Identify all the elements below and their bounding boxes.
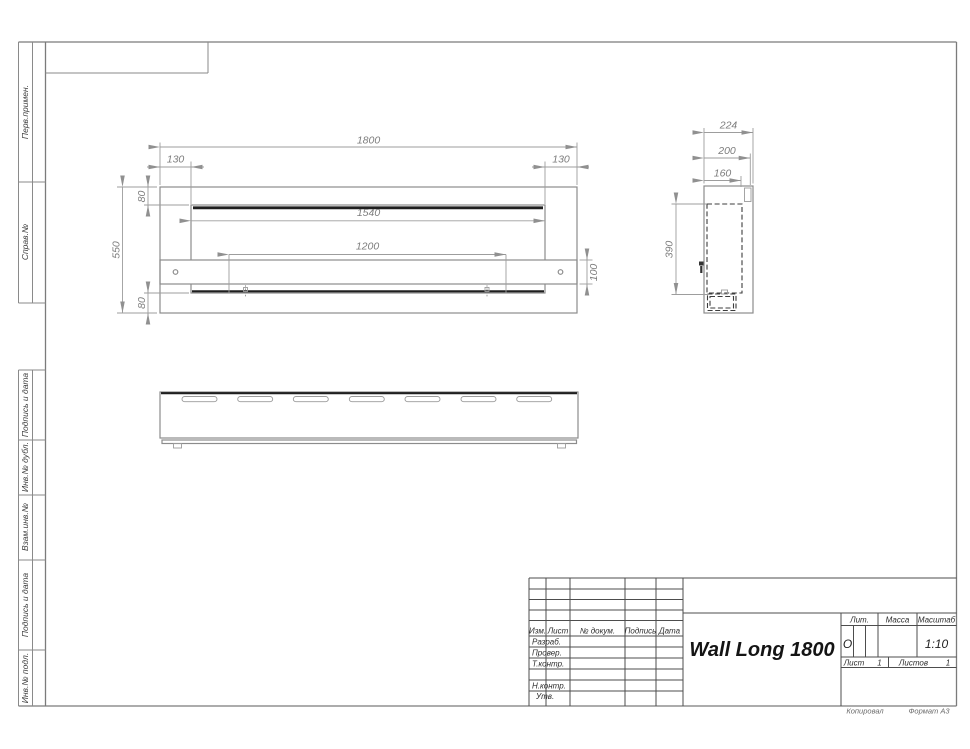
dim-side-depth-body: 200 <box>717 145 736 157</box>
side-latch <box>699 262 704 266</box>
margin-label-sprav-no: Справ.№ <box>20 224 30 260</box>
plan-view <box>160 392 578 448</box>
dim-side-depth-overall: 224 <box>719 120 738 132</box>
tb-col-doc: № докум. <box>580 627 615 636</box>
tb-row-razrab: Разраб. <box>532 638 561 647</box>
tb-row-utv: Утв. <box>535 692 554 701</box>
plan-mount-rail <box>162 440 577 444</box>
tb-col-data: Дата <box>658 627 681 636</box>
tb-liter-value: О <box>843 637 852 651</box>
dim-side-depth-inner: 160 <box>714 168 732 180</box>
dim-front-height: 550 <box>111 241 123 259</box>
tb-sheets-value: 1 <box>946 659 950 668</box>
tb-drawing-name: Wall Long 1800 <box>689 639 834 661</box>
dim-side-inner-height: 390 <box>664 241 676 259</box>
tb-row-nkontr: Н.контр. <box>532 682 566 691</box>
margin-label-podpis-data-1: Подпись и дата <box>20 373 30 438</box>
dim-front-inner-width: 1200 <box>356 241 380 253</box>
dim-front-width: 1800 <box>357 135 381 147</box>
tb-row-prover: Провер. <box>532 649 562 658</box>
front-view: 1540 1200 1800 130 130 550 <box>111 135 601 321</box>
engineering-drawing: Перв.примен. Справ.№ Подпись и дата Инв.… <box>0 0 970 749</box>
drawing-frame <box>19 42 957 706</box>
footer-format: Формат А3 <box>908 707 950 716</box>
tb-lit-label: Лит. <box>849 616 869 625</box>
sheet-footer: Копировал Формат А3 <box>846 707 950 716</box>
margin-label-inv-dubl: Инв.№ дубл. <box>20 442 30 492</box>
tb-col-izm: Изм. <box>529 627 546 636</box>
margin-label-inv-podl: Инв.№ подл. <box>20 653 30 703</box>
tb-col-podpis: Подпись <box>625 627 657 636</box>
dim-front-top-flange: 80 <box>136 191 148 203</box>
dim-front-opening-width: 1540 <box>357 207 381 219</box>
margin-label-perv-primen: Перв.примен. <box>20 85 30 139</box>
tb-masshtab-label: Масштаб <box>918 616 956 625</box>
tb-col-list: Лист <box>547 627 569 636</box>
tb-massa-label: Масса <box>886 616 910 625</box>
dim-front-offset-right: 130 <box>552 154 570 166</box>
plan-foot-right <box>558 444 566 449</box>
plan-vent-slots <box>182 397 552 402</box>
dim-front-bottom-flange: 80 <box>136 297 148 309</box>
margin-label-podpis-data-2: Подпись и дата <box>20 573 30 638</box>
corner-reference-box <box>46 42 209 73</box>
side-burner-inner <box>710 297 734 309</box>
tb-listov-label: Листов <box>898 659 928 668</box>
tb-sheet-value: 1 <box>877 659 881 668</box>
plan-foot-left <box>174 444 182 449</box>
tb-scale-value: 1:10 <box>925 637 949 651</box>
dim-front-offset-left: 130 <box>167 154 185 166</box>
side-hidden-body <box>707 204 742 293</box>
dim-front-shelf-height: 100 <box>588 264 600 282</box>
margin-label-vzam-inv: Взам.инв.№ <box>20 503 30 551</box>
side-bracket <box>745 188 752 202</box>
tb-row-tkontr: Т.контр. <box>532 660 564 669</box>
tb-list-label: Лист <box>843 659 865 668</box>
side-view: 224 200 160 390 <box>664 120 754 314</box>
footer-kopiroval: Копировал <box>846 707 884 716</box>
front-shelf-bar <box>160 260 577 284</box>
blueprint-page: Перв.примен. Справ.№ Подпись и дата Инв.… <box>0 0 970 749</box>
margin-labels: Перв.примен. Справ.№ Подпись и дата Инв.… <box>20 85 30 703</box>
